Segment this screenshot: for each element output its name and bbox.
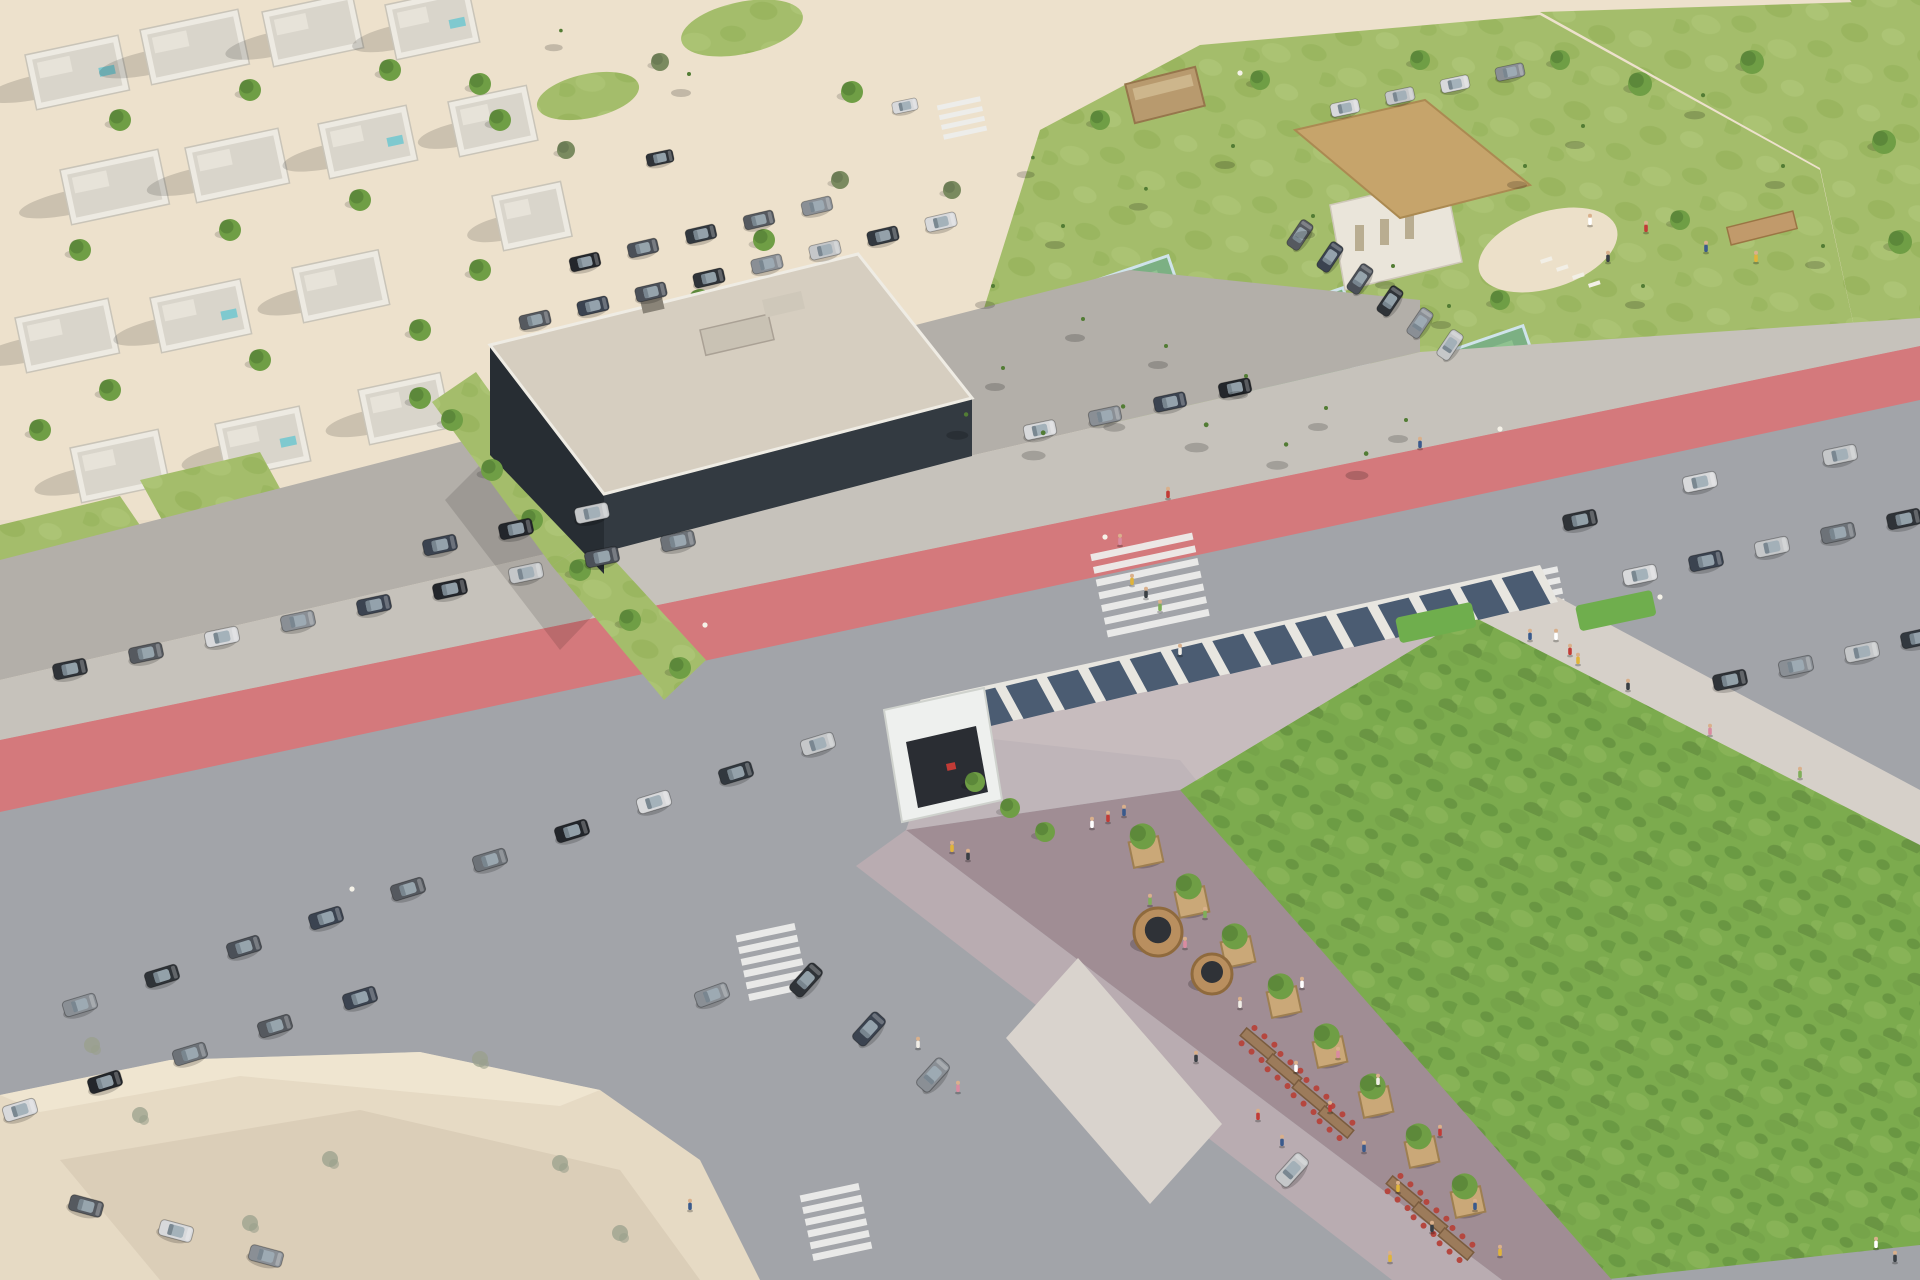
street-lamp: [1102, 534, 1107, 539]
scene-svg: [0, 0, 1920, 1280]
aerial-render-viewport: [0, 0, 1920, 1280]
street-lamp: [702, 622, 707, 627]
street-lamp: [1497, 426, 1502, 431]
street-lamp: [349, 886, 354, 891]
entrance-pavilion: [884, 688, 1002, 822]
street-lamp: [1657, 594, 1662, 599]
street-lamp: [1237, 70, 1242, 75]
